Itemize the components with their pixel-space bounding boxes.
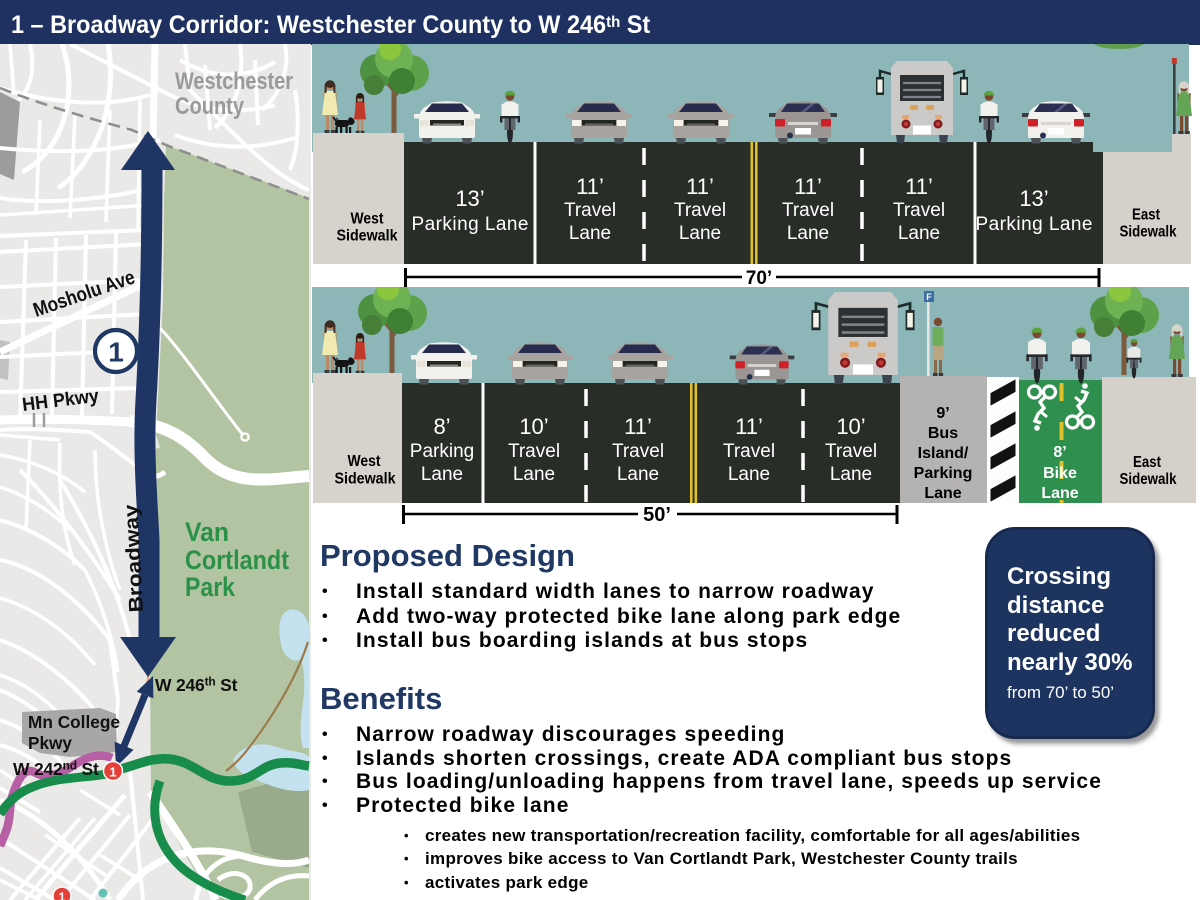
svg-text:County: County [175, 93, 245, 120]
svg-text:East: East [1133, 454, 1161, 471]
svg-text:1: 1 [109, 765, 116, 780]
svg-text:Island/: Island/ [918, 445, 969, 462]
svg-text:Travel: Travel [564, 200, 616, 221]
svg-text:Park: Park [185, 572, 236, 602]
svg-text:11’: 11’ [686, 174, 714, 199]
svg-text:11’: 11’ [794, 174, 822, 199]
svg-text:Parking Lane: Parking Lane [976, 214, 1093, 235]
svg-text:Travel: Travel [723, 441, 775, 462]
svg-text:Mn College: Mn College [28, 712, 120, 732]
svg-text:13’: 13’ [455, 186, 484, 211]
svg-text:11’: 11’ [576, 174, 604, 199]
svg-text:West: West [351, 211, 384, 228]
svg-text:Lane: Lane [617, 464, 659, 485]
svg-text:Lane: Lane [421, 464, 463, 485]
svg-text:11’: 11’ [735, 414, 763, 439]
svg-text:13’: 13’ [1019, 186, 1048, 211]
svg-text:Lane: Lane [569, 223, 611, 244]
svg-text:Pkwy: Pkwy [28, 733, 72, 753]
svg-text:11’: 11’ [624, 414, 652, 439]
svg-text:8’: 8’ [433, 414, 450, 439]
svg-text:50’: 50’ [643, 504, 671, 526]
svg-text:Bike: Bike [1043, 465, 1077, 482]
svg-text:Travel: Travel [825, 441, 877, 462]
svg-text:Lane: Lane [728, 464, 770, 485]
svg-text:Travel: Travel [893, 200, 945, 221]
svg-text:Bus: Bus [928, 425, 958, 442]
svg-text:Travel: Travel [782, 200, 834, 221]
svg-text:West: West [348, 453, 381, 470]
svg-text:70’: 70’ [746, 268, 772, 289]
svg-text:W 246th St: W 246th St [155, 675, 238, 696]
svg-text:1: 1 [108, 337, 124, 368]
svg-text:Lane: Lane [513, 464, 555, 485]
svg-text:Lane: Lane [830, 464, 872, 485]
svg-text:10’: 10’ [519, 414, 548, 439]
svg-text:W 242nd St: W 242nd St [13, 759, 99, 780]
svg-text:Travel: Travel [674, 200, 726, 221]
svg-text:Sidewalk: Sidewalk [1120, 224, 1177, 241]
svg-text:Lane: Lane [1041, 485, 1078, 502]
svg-text:Sidewalk: Sidewalk [1120, 471, 1177, 488]
svg-text:Parking: Parking [410, 441, 474, 462]
svg-text:Lane: Lane [924, 485, 961, 502]
svg-text:Lane: Lane [898, 223, 940, 244]
svg-text:Parking: Parking [914, 465, 973, 482]
svg-text:Cortlandt: Cortlandt [185, 545, 289, 575]
svg-text:Westchester: Westchester [175, 68, 293, 95]
svg-text:Van: Van [185, 517, 229, 547]
svg-text:1: 1 [59, 890, 66, 900]
svg-text:Travel: Travel [612, 441, 664, 462]
svg-text:F: F [926, 292, 932, 302]
svg-text:9’: 9’ [936, 405, 949, 422]
svg-text:Travel: Travel [508, 441, 560, 462]
svg-text:Sidewalk: Sidewalk [337, 228, 398, 245]
svg-text:Parking Lane: Parking Lane [412, 214, 529, 235]
svg-text:Lane: Lane [679, 223, 721, 244]
svg-text:11’: 11’ [905, 174, 933, 199]
svg-text:8’: 8’ [1053, 444, 1066, 461]
svg-text:Lane: Lane [787, 223, 829, 244]
svg-text:10’: 10’ [836, 414, 865, 439]
svg-text:Sidewalk: Sidewalk [335, 471, 396, 488]
svg-text:East: East [1132, 207, 1160, 224]
